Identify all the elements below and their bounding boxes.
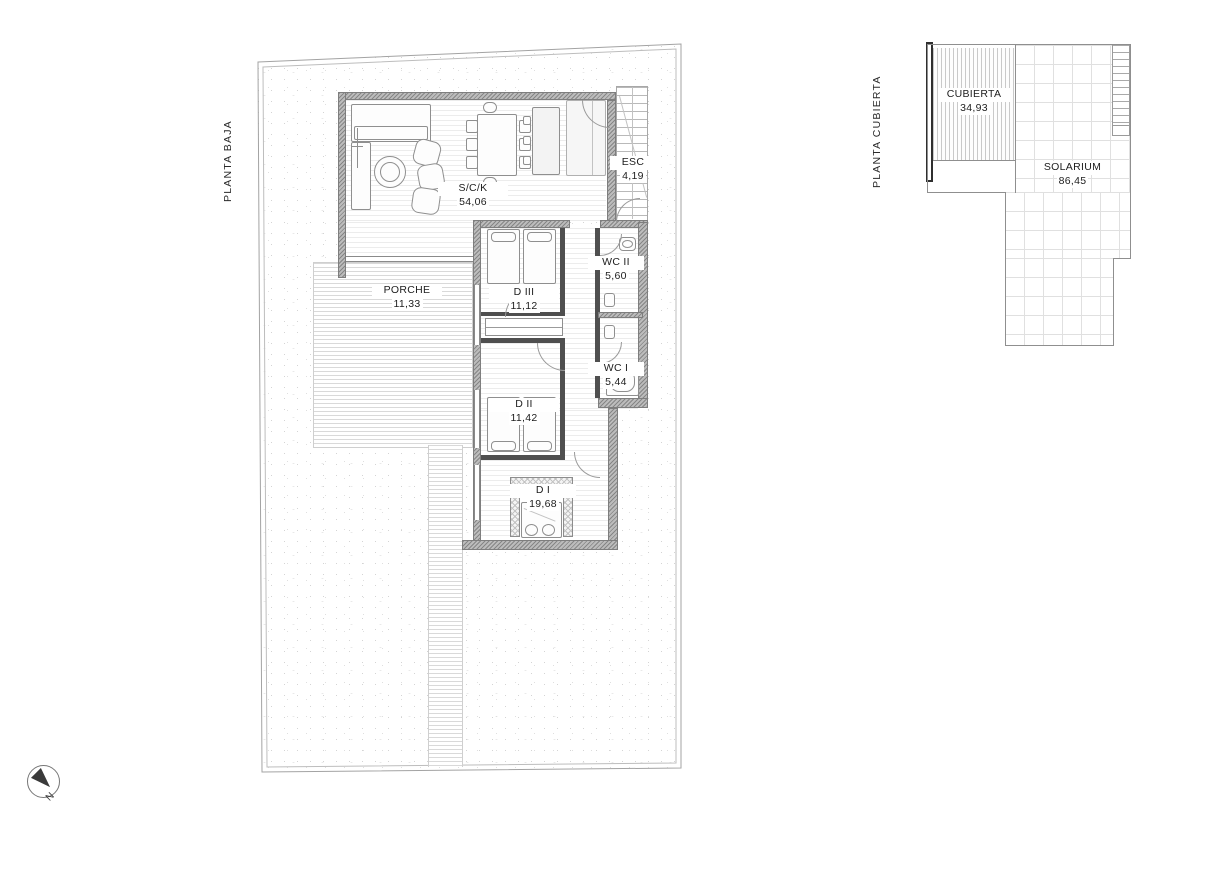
armchair-round-inner [380, 162, 400, 182]
room-label-esc: ESC 4,19 [610, 156, 656, 183]
partition-d2-south [481, 455, 565, 460]
roof-outline-north [927, 44, 1130, 45]
room-area: 11,33 [392, 298, 423, 312]
roof-outline-notch-h [1113, 258, 1131, 259]
roof-divider [1015, 45, 1016, 193]
room-name: D III [489, 286, 559, 300]
room-area: 5,44 [603, 376, 629, 390]
bar-stool [523, 156, 531, 165]
wall-north [338, 92, 616, 100]
cubierta-hatch-edge [933, 160, 1015, 161]
sofa-chaise [351, 142, 371, 210]
partition-wc-mid [598, 312, 643, 318]
room-area: 54,06 [457, 196, 489, 210]
pillow [527, 232, 552, 242]
room-name: PORCHE [372, 284, 442, 298]
bar-stool [523, 116, 531, 125]
roof-ladder [1112, 45, 1130, 125]
room-name: CUBIERTA [938, 88, 1010, 102]
plan-title-planta-baja: PLANTA BAJA [222, 118, 234, 202]
dining-table [477, 114, 517, 176]
roof-outline-notch-v [1113, 258, 1114, 346]
room-name: D I [510, 484, 576, 498]
window-wing-3 [474, 465, 480, 520]
solarium-tiles [1005, 258, 1113, 345]
room-name: WC II [588, 256, 644, 270]
room-label-d1: D I 19,68 [510, 484, 576, 511]
wall-wc1-south [598, 398, 648, 408]
wall-south [462, 540, 618, 550]
room-area: 11,42 [509, 412, 540, 426]
wall-wing-east-lower [608, 408, 618, 548]
kitchen-island [532, 107, 560, 175]
roof-outline-west-lower [1005, 192, 1006, 346]
room-label-solarium: SOLARIUM 86,45 [1035, 161, 1110, 188]
room-area: 11,12 [509, 300, 540, 314]
pillow [542, 524, 555, 536]
room-name: WC I [588, 362, 644, 376]
sliding-door-porch [346, 256, 473, 262]
pillow [527, 441, 552, 451]
sink-wc2-basin [622, 240, 633, 248]
dining-chair [483, 102, 497, 113]
room-area: 34,93 [958, 102, 990, 116]
dining-chair [466, 156, 478, 169]
floor-lamp [357, 128, 358, 168]
room-label-d2: D II 11,42 [489, 398, 559, 425]
room-name: SOLARIUM [1035, 161, 1110, 175]
room-label-porche: PORCHE 11,33 [372, 284, 442, 311]
dining-chair [466, 138, 478, 151]
bar-stool [523, 136, 531, 145]
sofa-seat [354, 126, 428, 140]
room-name: ESC [610, 156, 656, 170]
room-label-cubierta: CUBIERTA 34,93 [938, 88, 1010, 115]
room-name: S/C/K [438, 182, 508, 196]
floor-lamp-arm [352, 146, 363, 147]
room-area: 86,45 [1057, 175, 1089, 189]
plan-title-planta-cubierta: PLANTA CUBIERTA [871, 92, 883, 188]
pillow [491, 232, 516, 242]
pillow [491, 441, 516, 451]
roof-ladder-landing [1112, 125, 1130, 136]
roof-outline-mid [927, 192, 1006, 193]
wall-living-bedrooms-west [473, 220, 570, 228]
solarium-tiles [1005, 192, 1130, 258]
roof-outline-south [1005, 345, 1114, 346]
room-area: 5,60 [603, 270, 629, 284]
toilet-wc2 [604, 293, 615, 307]
window-wing-1 [474, 285, 480, 345]
pillow [525, 524, 538, 536]
floor-plan-sheet: S/C/K 54,06 ESC 4,19 WC II 5,60 WC I 5,4… [0, 0, 1221, 877]
room-label-d3: D III 11,12 [489, 286, 559, 313]
window-wing-2 [474, 390, 480, 448]
room-area: 4,19 [620, 170, 646, 184]
room-label-sck: S/C/K 54,06 [438, 182, 508, 209]
north-arrow: N [20, 758, 80, 818]
room-area: 19,68 [527, 498, 559, 512]
room-name: D II [489, 398, 559, 412]
room-label-wc1: WC I 5,44 [588, 362, 644, 389]
wall-west-living [338, 92, 346, 278]
toilet-wc1 [604, 325, 615, 339]
curved-sofa-3 [410, 186, 441, 216]
garden-path [428, 445, 463, 767]
partition-d3-east [560, 228, 565, 312]
wardrobe-hall [485, 318, 563, 336]
dining-chair [466, 120, 478, 133]
floor-living-south [346, 222, 473, 258]
roof-outline-east [1130, 44, 1131, 259]
roof-outline-west-upper [927, 44, 928, 193]
room-label-wc2: WC II 5,60 [588, 256, 644, 283]
